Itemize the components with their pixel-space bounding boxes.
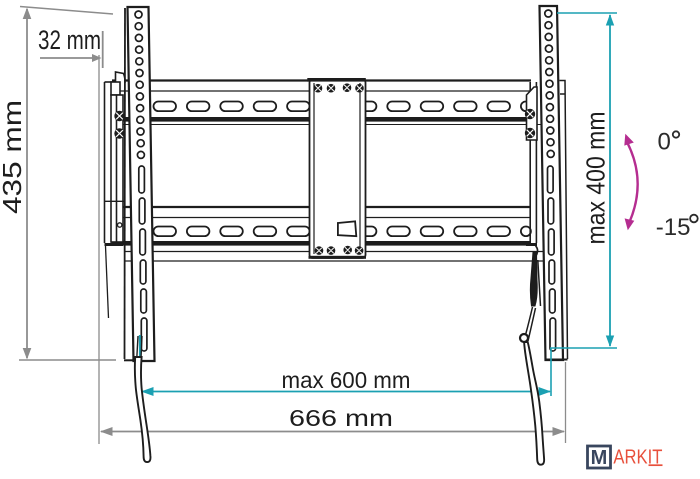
svg-text:max 600 mm: max 600 mm — [282, 367, 411, 393]
svg-text:-15: -15 — [656, 214, 691, 241]
svg-text:max 400 mm: max 400 mm — [581, 112, 611, 245]
svg-text:M: M — [591, 447, 608, 469]
svg-text:666 mm: 666 mm — [289, 405, 393, 431]
svg-text:435 mm: 435 mm — [0, 100, 27, 214]
svg-text:32 mm: 32 mm — [38, 25, 101, 55]
svg-text:0: 0 — [658, 129, 671, 156]
